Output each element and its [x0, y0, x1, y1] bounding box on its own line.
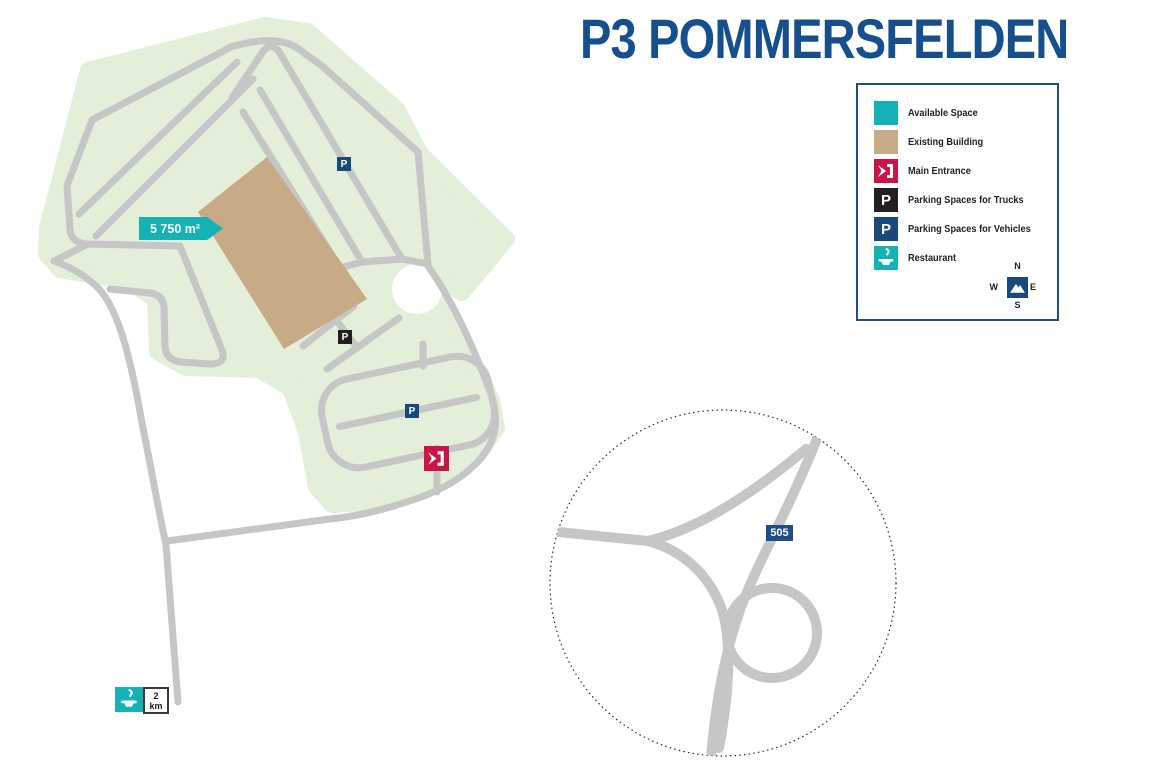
parking-letter: P: [874, 188, 898, 212]
available-space-swatch: [874, 101, 898, 125]
compass-south-label: S: [1007, 300, 1028, 310]
compass-west-label: W: [980, 282, 998, 292]
legend-item-label: Parking Spaces for Trucks: [908, 195, 1024, 206]
site-map: [0, 0, 560, 760]
legend-item: Existing Building: [874, 130, 990, 154]
compass-north-label: N: [1007, 261, 1028, 271]
parking-vehicles-marker-lower: P: [405, 404, 419, 418]
legend-item-label: Available Space: [908, 108, 978, 119]
legend-item-label: Existing Building: [908, 137, 983, 148]
restaurant-swatch: [874, 246, 898, 270]
parking-vehicles-marker-top: P: [337, 157, 351, 171]
legend-item-label: Restaurant: [908, 253, 956, 264]
main-entrance-swatch: [874, 159, 898, 183]
parking-vehicles-swatch: P: [874, 217, 898, 241]
distance-unit: km: [145, 701, 167, 711]
area-size-tag: 5 750 m²: [139, 217, 223, 240]
distance-value: 2: [145, 691, 167, 701]
entrance-icon: [874, 159, 898, 183]
existing-building-swatch: [874, 130, 898, 154]
route-badge-505: 505: [766, 525, 793, 541]
legend-item: P Parking Spaces for Vehicles: [874, 217, 1041, 241]
north-icon: [1007, 277, 1028, 298]
legend-item: Available Space: [874, 101, 984, 125]
legend-item-label: Main Entrance: [908, 166, 971, 177]
legend-item: Restaurant: [874, 246, 960, 270]
page-title: P3 POMMERSFELDEN: [580, 6, 1068, 71]
distance-box: 2 km: [143, 687, 169, 714]
parking-trucks-swatch: P: [874, 188, 898, 212]
restaurant-icon: [874, 246, 898, 270]
compass-east-label: E: [1030, 282, 1048, 292]
restaurant-distance-marker: 2 km: [115, 687, 169, 714]
legend-item: P Parking Spaces for Trucks: [874, 188, 1034, 212]
parking-letter: P: [874, 217, 898, 241]
compass-square: [1007, 277, 1028, 298]
legend-box: Available Space Existing Building Main E…: [856, 83, 1059, 321]
junction-inset: [545, 400, 905, 770]
legend-item: Main Entrance: [874, 159, 976, 183]
main-entrance-marker: [424, 446, 449, 471]
parking-trucks-marker: P: [338, 330, 352, 344]
restaurant-icon: [115, 687, 143, 712]
page: { "title": "P3 POMMERSFELDEN", "legend":…: [0, 0, 1151, 775]
legend-item-label: Parking Spaces for Vehicles: [908, 224, 1031, 235]
